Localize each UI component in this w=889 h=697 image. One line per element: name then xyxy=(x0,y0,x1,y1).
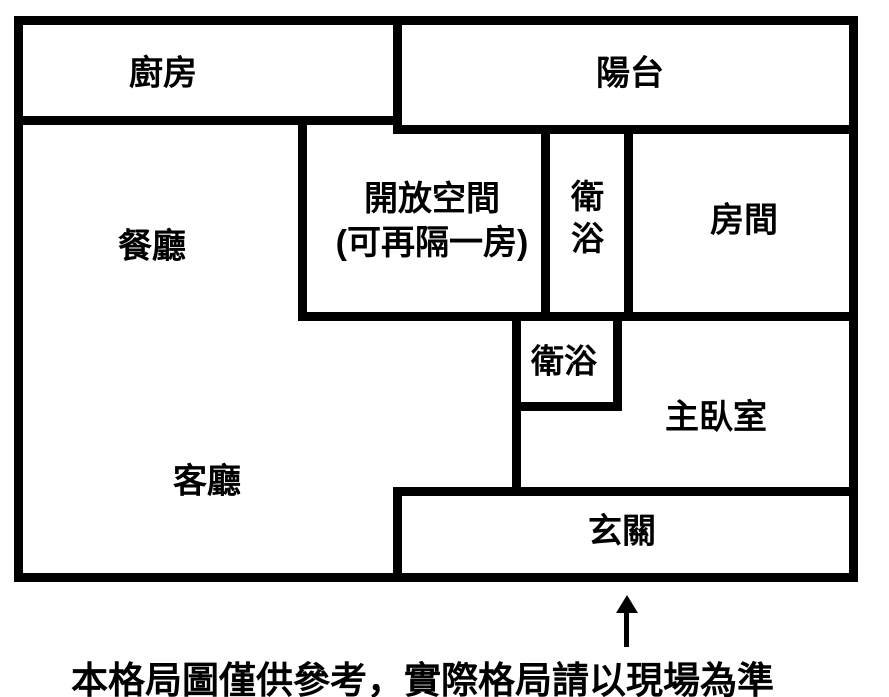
wall-outer-top xyxy=(14,16,858,25)
wall-balcony-bottom xyxy=(393,125,858,134)
room-label-entry: 玄關 xyxy=(588,510,656,555)
room-label-dining: 餐廳 xyxy=(118,225,186,270)
disclaimer-caption: 本格局圖僅供參考，實際格局請以現場為準 xyxy=(0,650,845,697)
wall-outer-left xyxy=(14,16,23,582)
room-label-open-space: 開放空間 (可再隔一房) xyxy=(336,177,529,265)
wall-outer-bottom xyxy=(14,573,858,582)
wall-outer-right xyxy=(849,16,858,582)
room-label-master-bedroom: 主臥室 xyxy=(665,396,767,441)
wall-bath-lower-bottom xyxy=(512,402,622,411)
room-label-kitchen: 廚房 xyxy=(129,52,197,97)
room-label-open-space-line1: 開放空間 xyxy=(336,177,529,221)
wall-bath-lower-right xyxy=(613,321,622,411)
room-label-room: 房間 xyxy=(710,199,778,244)
wall-bath-upper-right xyxy=(624,134,633,312)
wall-mid-horizontal xyxy=(298,312,858,321)
wall-bath-upper-left xyxy=(541,134,550,312)
room-label-bath-upper: 衛浴 xyxy=(569,179,602,263)
floor-plan: 廚房 陽台 餐廳 開放空間 (可再隔一房) 衛浴 房間 衛浴 主臥室 客廳 玄關… xyxy=(0,0,889,697)
arrow-shaft xyxy=(624,610,629,647)
wall-kitchen-bottom xyxy=(14,116,402,125)
wall-open-space-left xyxy=(298,116,307,321)
room-label-balcony: 陽台 xyxy=(596,52,664,97)
wall-entry-left xyxy=(393,487,402,582)
room-label-open-space-line2: (可再隔一房) xyxy=(336,221,529,265)
wall-entry-top xyxy=(393,487,858,496)
wall-kitchen-balcony-divider xyxy=(393,16,402,134)
room-label-living: 客廳 xyxy=(173,460,241,505)
room-label-bath-lower: 衛浴 xyxy=(531,339,597,384)
